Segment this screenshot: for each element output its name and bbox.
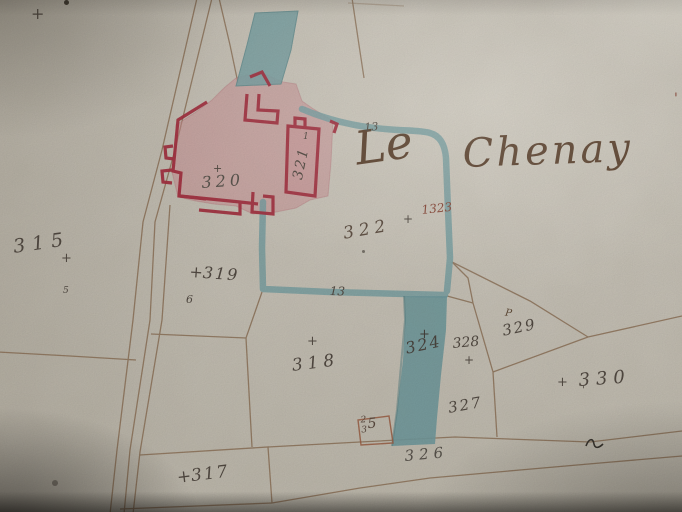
road-number-13-top: 13 (364, 121, 379, 133)
stream-top-wash (236, 11, 298, 86)
road-number-13-bottom: 13 (330, 285, 346, 298)
parcel-label-320: 320 (201, 172, 245, 191)
parcel-325-digit: 5 (367, 415, 377, 432)
survey-cross-icon: + (61, 252, 72, 265)
place-title-le: Le (352, 118, 416, 172)
survey-cross-icon: + (403, 213, 413, 225)
survey-cross-icon: + (31, 6, 44, 22)
survey-cross-icon: + (557, 376, 568, 389)
ink-smudge (52, 480, 58, 486)
parcel-label-325: 23 5 (360, 415, 377, 436)
road-lines (0, 0, 682, 512)
parcel-label-326: 326 (404, 445, 449, 464)
small-mark-six: 6 (186, 294, 193, 305)
ink-dot (64, 0, 69, 5)
small-mark-one: 1 (303, 133, 309, 142)
edge-tick-mark: ' (674, 92, 678, 106)
small-tick-mark: ' (582, 386, 585, 396)
survey-cross-icon: + (307, 335, 318, 348)
survey-cross-icon: + (213, 163, 222, 174)
cadastral-map-photo: Le Chenay 315 +317 318 +319 320 321 322 … (0, 0, 682, 512)
small-flag-mark: P (504, 309, 512, 320)
parcel-label-330: 330 (578, 368, 631, 390)
place-title-chenay: Chenay (462, 128, 634, 174)
survey-cross-icon: + (419, 328, 430, 341)
parcel-label-319: +319 (189, 264, 240, 283)
parcel-label-1323: 1323 (421, 201, 453, 216)
small-mark: 5 (63, 287, 69, 296)
map-geometry (0, 0, 682, 512)
parcel-325-digit: 3 (361, 426, 367, 436)
survey-cross-icon: + (464, 354, 474, 366)
parcel-label-328: 328 (452, 335, 480, 351)
ink-dot (362, 250, 365, 253)
